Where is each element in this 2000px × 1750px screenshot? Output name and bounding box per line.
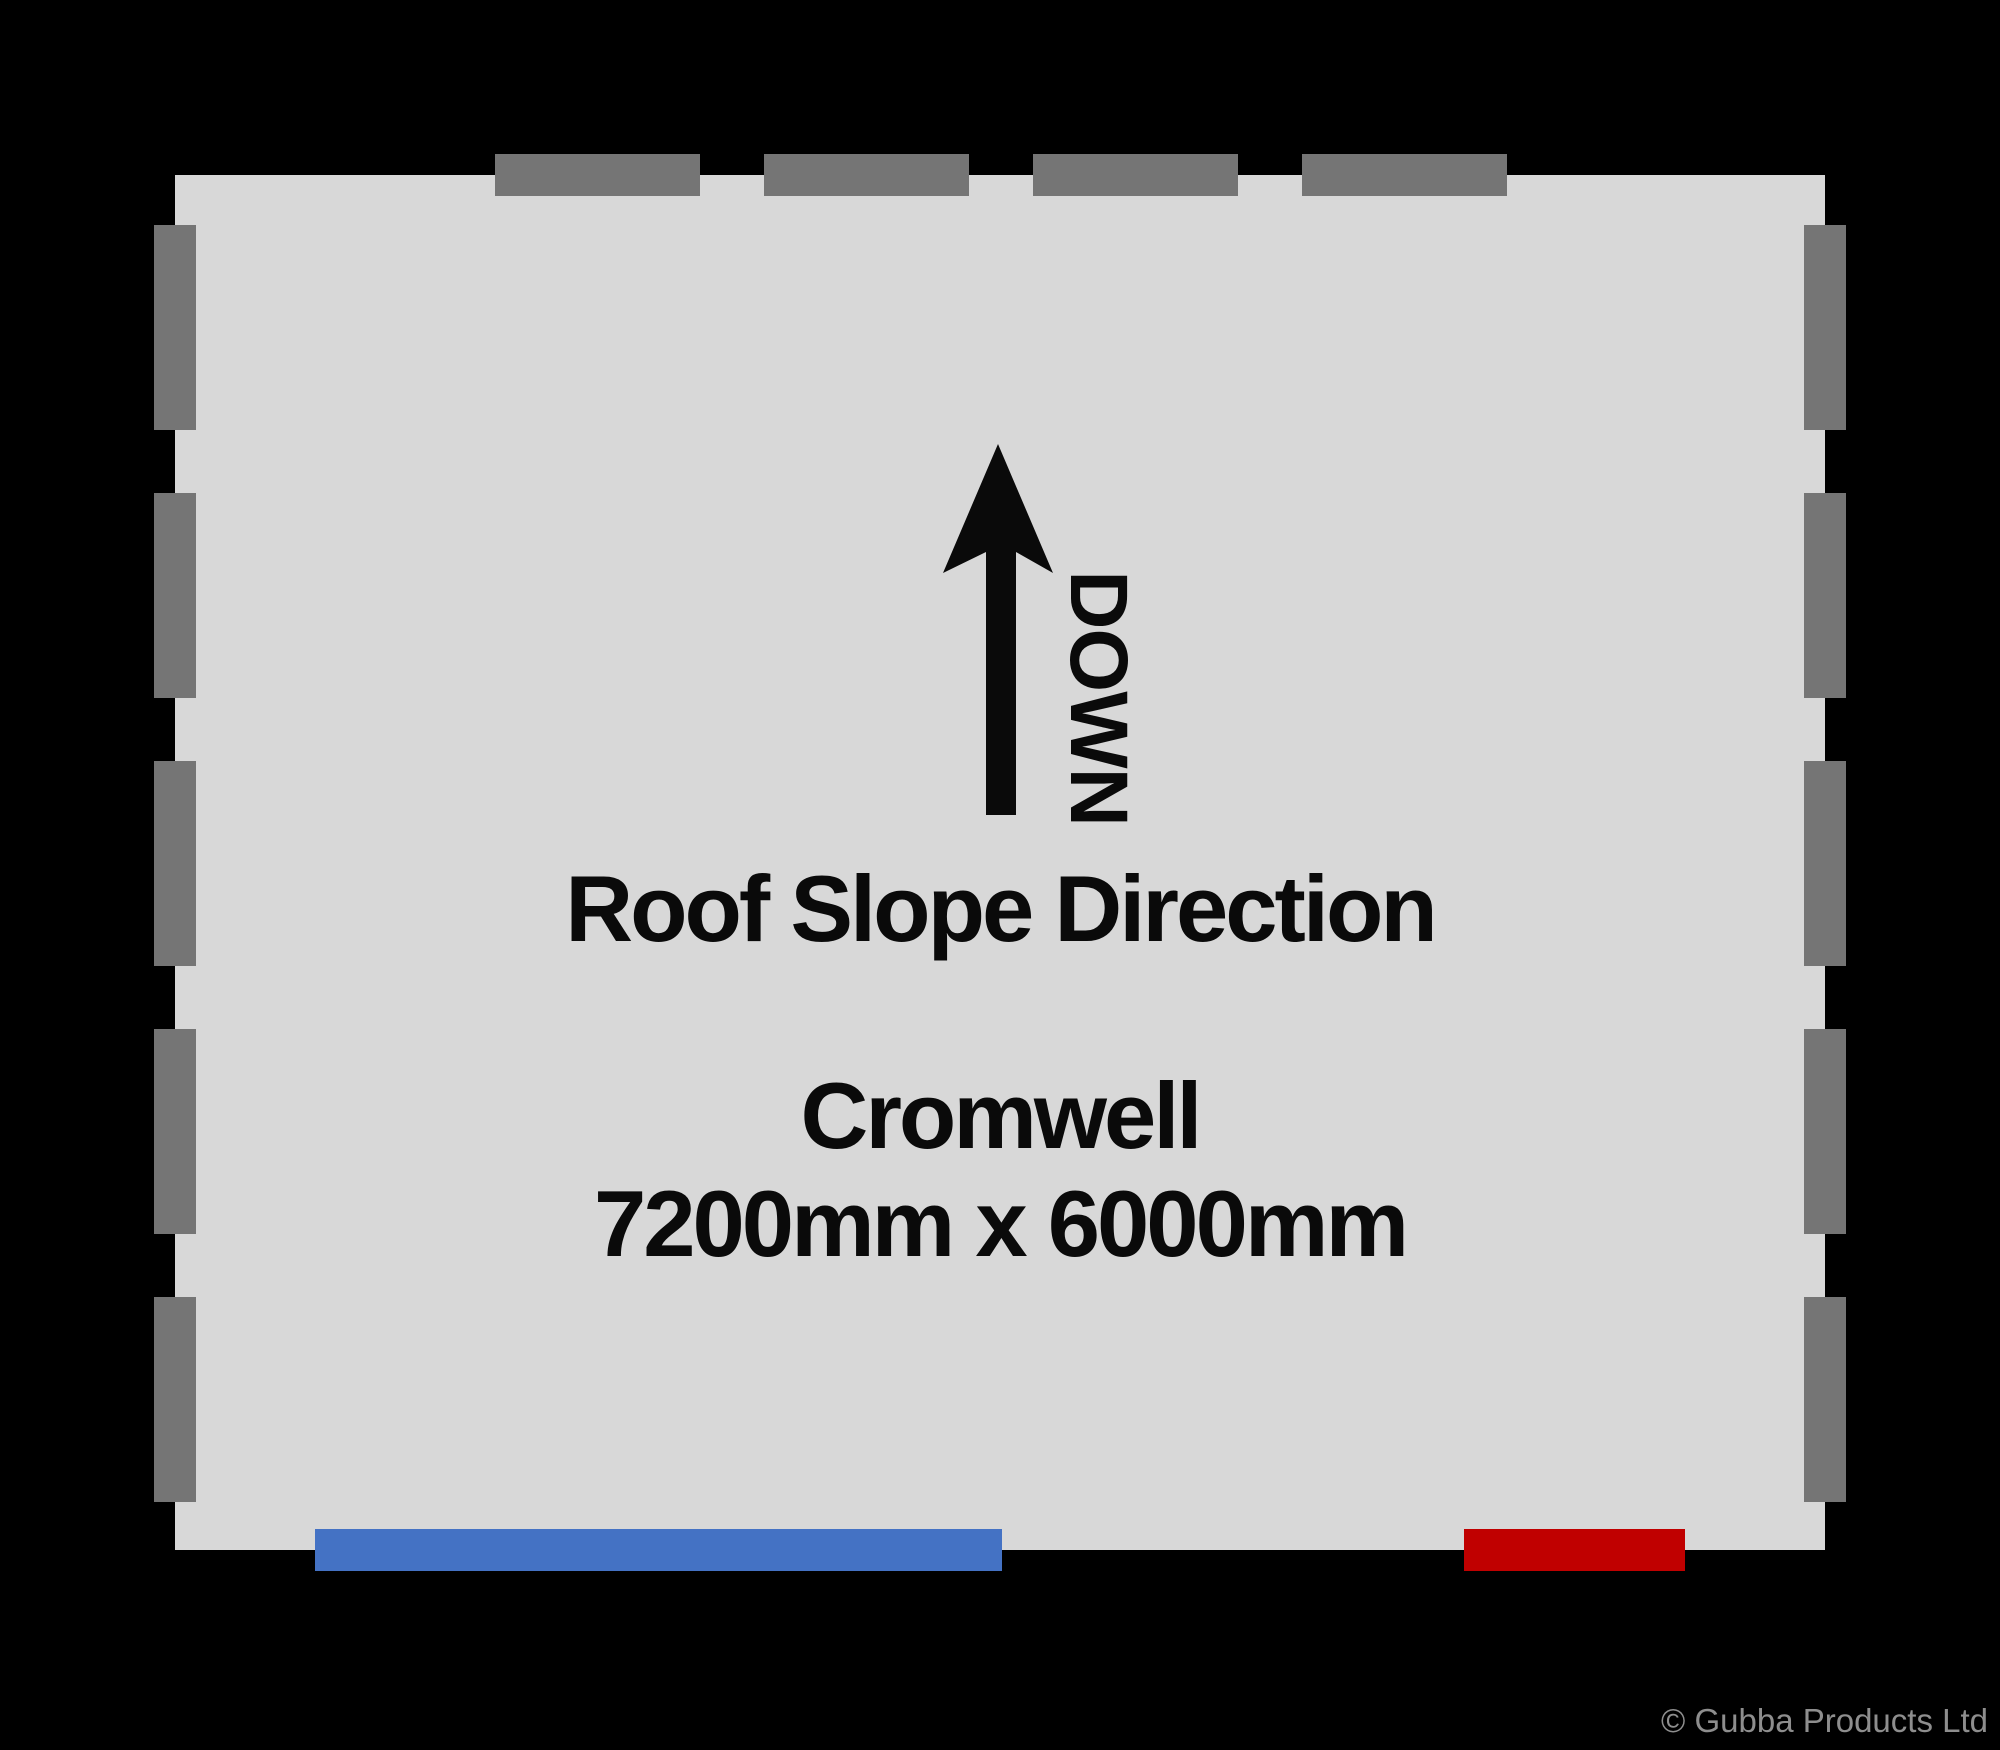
wall-dash xyxy=(154,1297,196,1502)
copyright-text: © Gubba Products Ltd xyxy=(1661,1702,1988,1740)
window-marker xyxy=(1464,1529,1685,1571)
door-marker xyxy=(315,1529,1002,1571)
plan-title: Cromwell 7200mm x 6000mm xyxy=(0,1062,2000,1278)
wall-dash xyxy=(764,154,969,196)
roof-slope-label: Roof Slope Direction xyxy=(0,855,2000,963)
wall-dash xyxy=(1804,1297,1846,1502)
floor-plan-canvas: DOWN Roof Slope Direction Cromwell 7200m… xyxy=(0,0,2000,1750)
wall-dash xyxy=(1804,493,1846,698)
plan-name: Cromwell xyxy=(0,1062,2000,1170)
down-label: DOWN xyxy=(1051,570,1145,826)
arrow-up-icon xyxy=(940,440,1060,820)
wall-dash xyxy=(154,493,196,698)
wall-dash xyxy=(1302,154,1507,196)
plan-dimensions: 7200mm x 6000mm xyxy=(0,1170,2000,1278)
wall-dash xyxy=(1804,225,1846,430)
roof-slope-arrow xyxy=(940,440,1060,820)
wall-dash xyxy=(1033,154,1238,196)
wall-dash xyxy=(154,225,196,430)
wall-dash xyxy=(495,154,700,196)
